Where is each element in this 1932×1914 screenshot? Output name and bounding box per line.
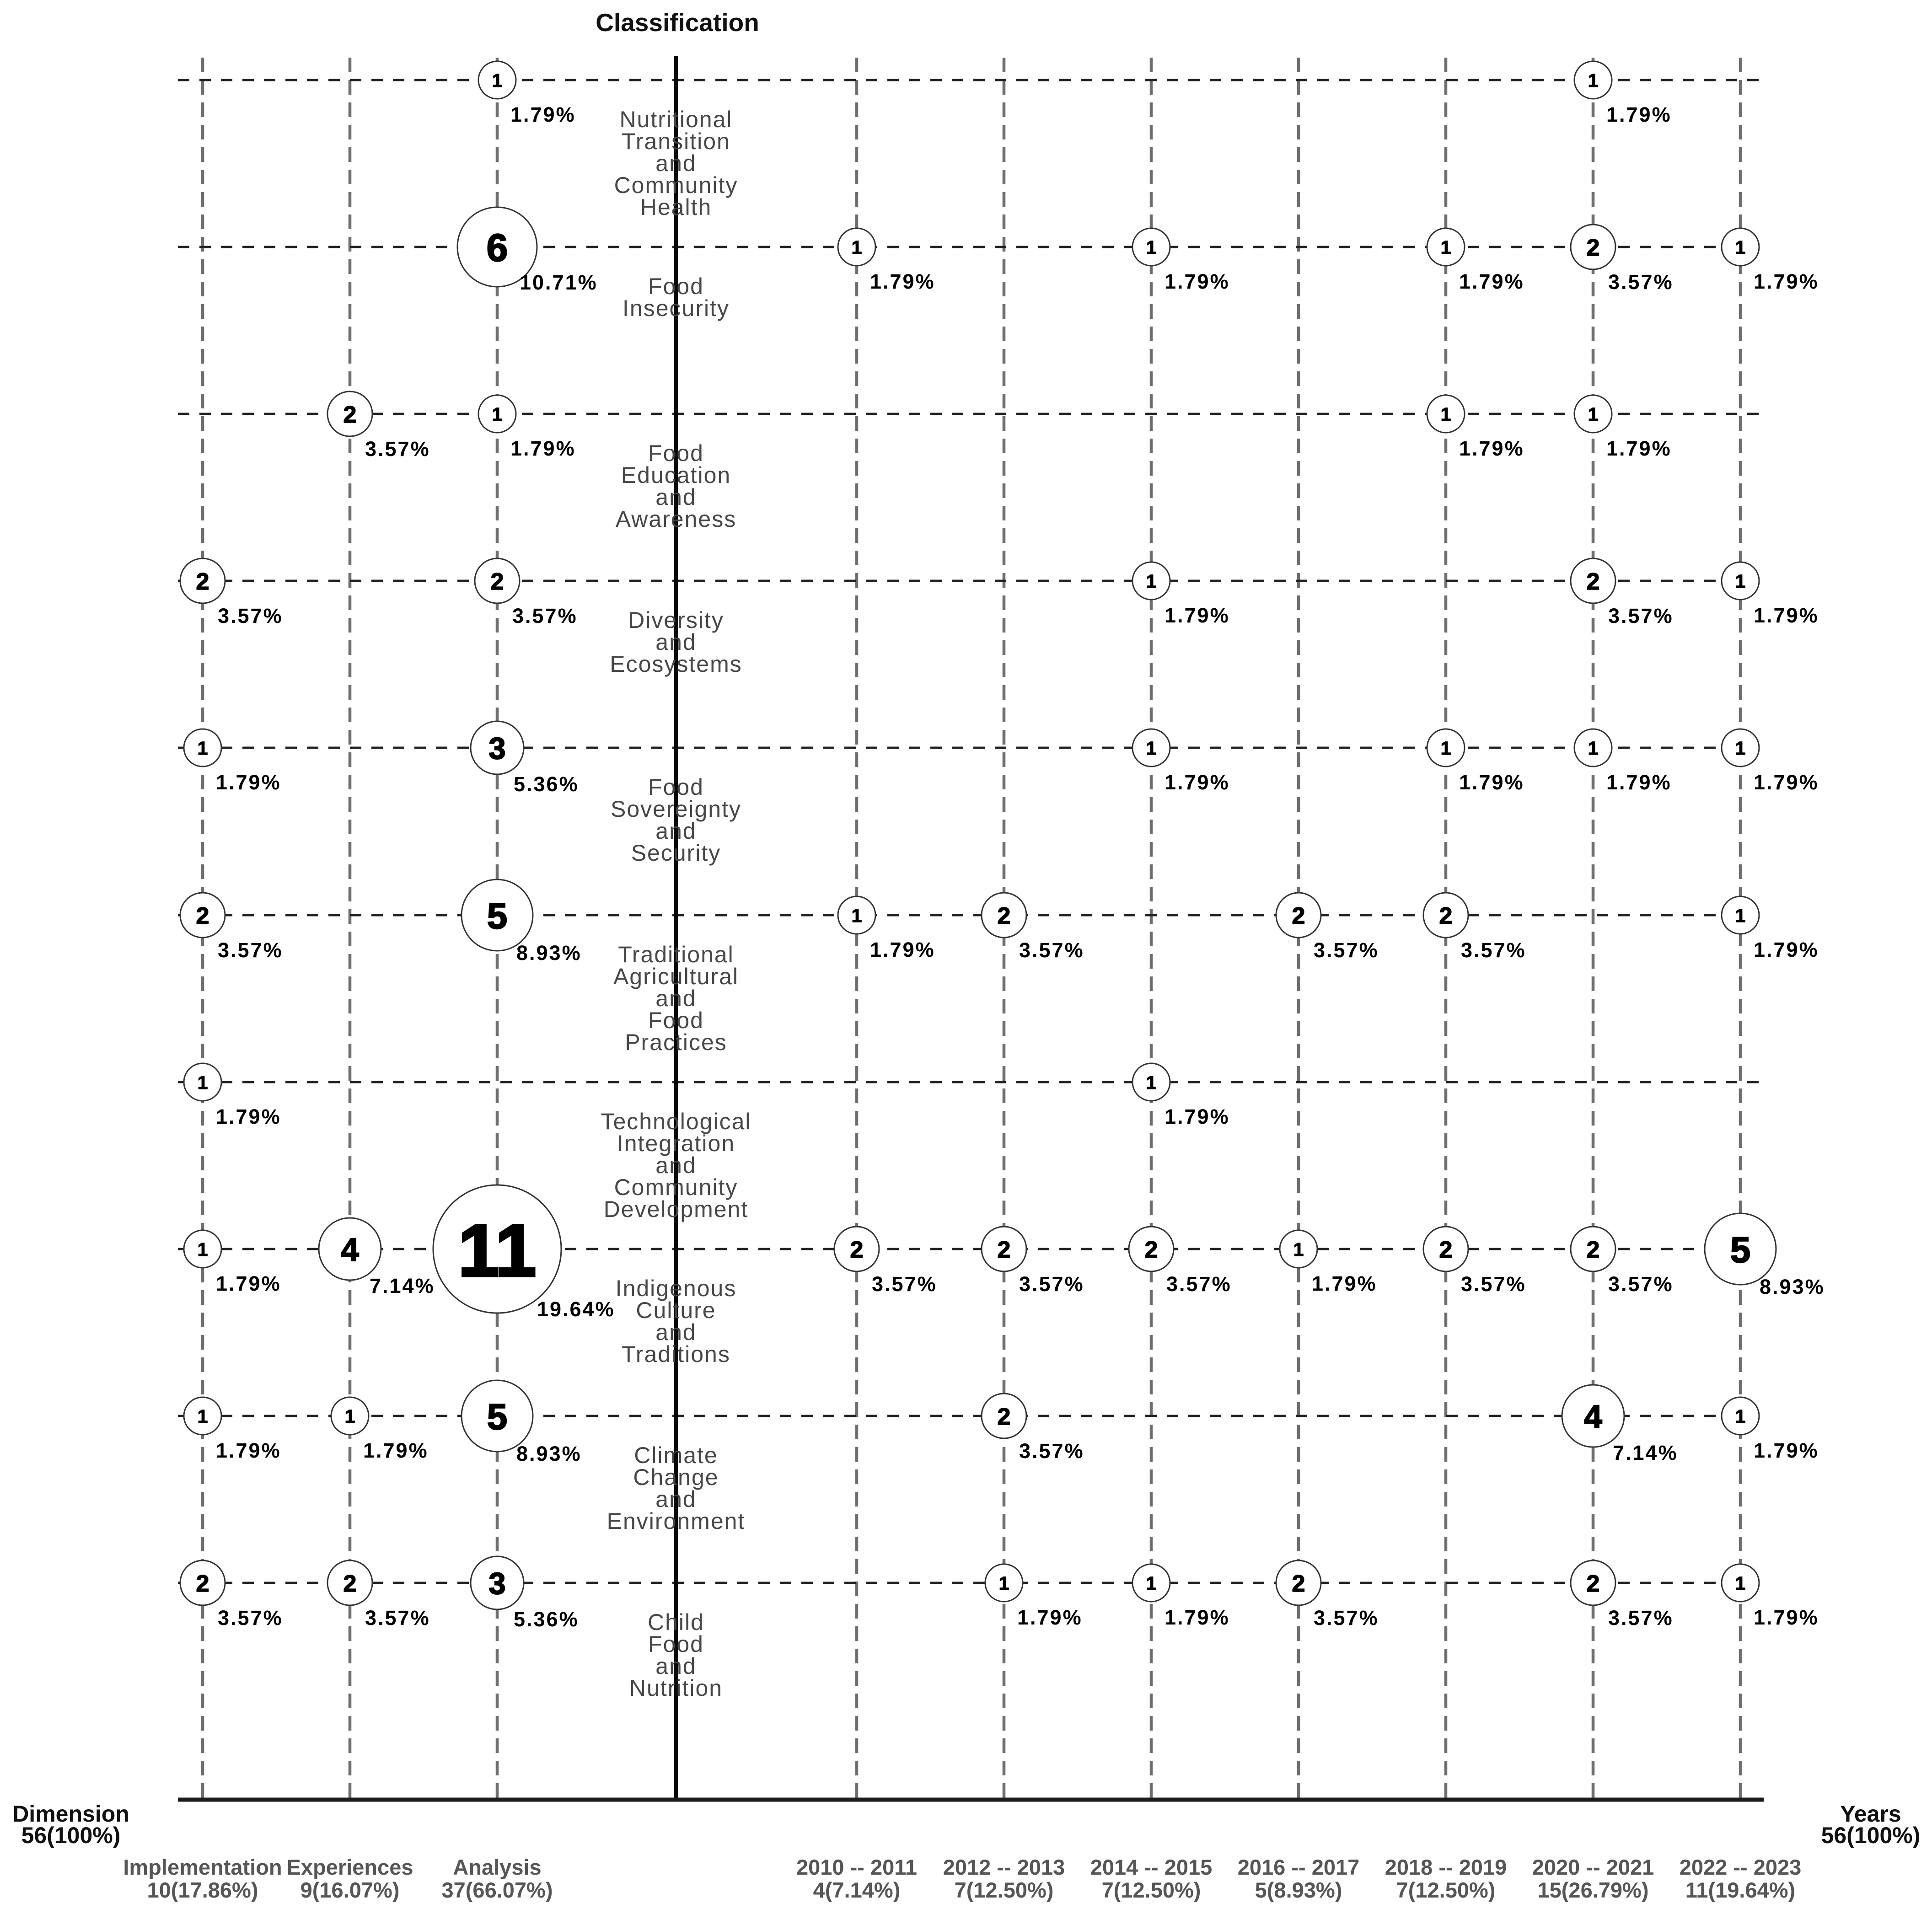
svg-text:5: 5 bbox=[487, 895, 508, 936]
svg-text:1: 1 bbox=[1735, 1573, 1746, 1594]
svg-text:ChildFoodandNutrition: ChildFoodandNutrition bbox=[629, 1609, 723, 1701]
svg-text:7.14%: 7.14% bbox=[370, 1274, 435, 1297]
svg-text:3.57%: 3.57% bbox=[1019, 1272, 1084, 1296]
svg-text:1.79%: 1.79% bbox=[1312, 1272, 1377, 1295]
svg-text:Analysis37(66.07%): Analysis37(66.07%) bbox=[442, 1855, 553, 1902]
svg-text:1: 1 bbox=[1441, 404, 1451, 425]
svg-text:2: 2 bbox=[1439, 903, 1453, 929]
svg-text:TraditionalAgriculturalandFood: TraditionalAgriculturalandFoodPractices bbox=[613, 942, 739, 1055]
svg-text:10.71%: 10.71% bbox=[520, 271, 598, 294]
svg-text:11: 11 bbox=[458, 1209, 536, 1292]
svg-text:1: 1 bbox=[345, 1406, 355, 1427]
svg-text:3.57%: 3.57% bbox=[872, 1272, 937, 1296]
svg-text:3.57%: 3.57% bbox=[1314, 1606, 1379, 1630]
svg-text:1: 1 bbox=[198, 1239, 208, 1260]
svg-text:1: 1 bbox=[1146, 1573, 1157, 1594]
svg-text:1: 1 bbox=[198, 1072, 208, 1093]
svg-text:1.79%: 1.79% bbox=[1754, 604, 1819, 627]
svg-text:Implementation10(17.86%): Implementation10(17.86%) bbox=[123, 1855, 282, 1902]
svg-text:1.79%: 1.79% bbox=[363, 1439, 429, 1462]
svg-text:1.79%: 1.79% bbox=[1459, 270, 1524, 293]
svg-text:2: 2 bbox=[850, 1237, 864, 1263]
svg-text:2: 2 bbox=[1292, 1571, 1305, 1597]
svg-text:Experiences9(16.07%): Experiences9(16.07%) bbox=[287, 1855, 413, 1902]
svg-text:5.36%: 5.36% bbox=[514, 772, 579, 796]
svg-text:1.79%: 1.79% bbox=[216, 771, 281, 794]
svg-text:1.79%: 1.79% bbox=[1165, 270, 1230, 293]
svg-text:ClimateChangeandEnvironment: ClimateChangeandEnvironment bbox=[607, 1442, 746, 1534]
svg-text:2: 2 bbox=[998, 1404, 1011, 1430]
svg-text:2: 2 bbox=[1292, 903, 1305, 929]
svg-text:2: 2 bbox=[491, 568, 504, 595]
svg-text:1.79%: 1.79% bbox=[1165, 604, 1230, 627]
svg-text:2: 2 bbox=[1587, 1237, 1600, 1263]
svg-text:3.57%: 3.57% bbox=[1019, 1439, 1084, 1463]
svg-text:7.14%: 7.14% bbox=[1613, 1441, 1678, 1464]
svg-text:2020 -- 202115(26.79%): 2020 -- 202115(26.79%) bbox=[1532, 1855, 1654, 1902]
svg-text:3.57%: 3.57% bbox=[1019, 938, 1084, 962]
svg-text:1.79%: 1.79% bbox=[1754, 270, 1819, 293]
svg-text:1: 1 bbox=[1441, 738, 1451, 759]
svg-text:1.79%: 1.79% bbox=[1459, 771, 1524, 794]
svg-text:1: 1 bbox=[1146, 1072, 1157, 1093]
svg-text:3.57%: 3.57% bbox=[1608, 270, 1674, 294]
svg-text:DiversityandEcosystems: DiversityandEcosystems bbox=[610, 607, 742, 677]
svg-text:3.57%: 3.57% bbox=[1608, 1606, 1674, 1630]
svg-text:4: 4 bbox=[1584, 1399, 1602, 1435]
svg-text:1: 1 bbox=[999, 1573, 1009, 1594]
svg-text:1.79%: 1.79% bbox=[1165, 771, 1230, 794]
svg-text:8.93%: 8.93% bbox=[1760, 1275, 1825, 1298]
svg-text:3.57%: 3.57% bbox=[1461, 1272, 1526, 1296]
svg-text:2: 2 bbox=[1587, 1571, 1600, 1597]
svg-text:3.57%: 3.57% bbox=[1166, 1272, 1232, 1296]
svg-text:2: 2 bbox=[343, 402, 357, 428]
svg-text:2: 2 bbox=[1439, 1237, 1453, 1263]
svg-text:3: 3 bbox=[488, 1566, 505, 1601]
svg-text:1.79%: 1.79% bbox=[216, 1105, 281, 1128]
svg-text:2: 2 bbox=[196, 1571, 209, 1597]
svg-text:3.57%: 3.57% bbox=[365, 437, 430, 461]
svg-text:2: 2 bbox=[1587, 568, 1600, 595]
svg-text:8.93%: 8.93% bbox=[516, 1442, 582, 1465]
svg-text:2: 2 bbox=[1145, 1237, 1158, 1263]
svg-text:1: 1 bbox=[1735, 237, 1746, 258]
svg-text:1.79%: 1.79% bbox=[1017, 1606, 1083, 1629]
svg-text:2012 -- 20137(12.50%): 2012 -- 20137(12.50%) bbox=[943, 1855, 1065, 1902]
svg-text:1: 1 bbox=[492, 70, 503, 91]
svg-text:1.79%: 1.79% bbox=[1165, 1606, 1230, 1629]
svg-text:4: 4 bbox=[341, 1232, 359, 1268]
svg-text:3.57%: 3.57% bbox=[218, 938, 283, 962]
svg-text:1.79%: 1.79% bbox=[1754, 938, 1819, 961]
svg-text:1: 1 bbox=[1735, 905, 1746, 926]
svg-text:1: 1 bbox=[852, 905, 862, 926]
svg-text:2: 2 bbox=[196, 568, 209, 595]
svg-text:1: 1 bbox=[1735, 571, 1746, 592]
svg-text:FoodInsecurity: FoodInsecurity bbox=[623, 273, 730, 321]
svg-text:1: 1 bbox=[198, 1406, 208, 1427]
svg-text:5: 5 bbox=[487, 1396, 508, 1437]
svg-text:1.79%: 1.79% bbox=[216, 1272, 281, 1295]
svg-text:1: 1 bbox=[1588, 404, 1599, 425]
svg-text:1: 1 bbox=[198, 738, 208, 759]
svg-text:1.79%: 1.79% bbox=[1165, 1105, 1230, 1128]
svg-text:1.79%: 1.79% bbox=[1754, 1439, 1819, 1462]
svg-text:1.79%: 1.79% bbox=[870, 938, 935, 961]
svg-text:2018 -- 20197(12.50%): 2018 -- 20197(12.50%) bbox=[1385, 1855, 1507, 1902]
svg-text:3.57%: 3.57% bbox=[218, 604, 283, 627]
svg-text:1: 1 bbox=[1146, 237, 1157, 258]
svg-text:2: 2 bbox=[998, 1237, 1011, 1263]
svg-text:5.36%: 5.36% bbox=[514, 1608, 579, 1631]
svg-text:2010 -- 20114(7.14%): 2010 -- 20114(7.14%) bbox=[796, 1855, 917, 1902]
svg-text:Dimension56(100%): Dimension56(100%) bbox=[12, 1801, 129, 1848]
svg-text:1.79%: 1.79% bbox=[216, 1439, 281, 1462]
svg-text:IndigenousCultureandTraditions: IndigenousCultureandTraditions bbox=[616, 1276, 737, 1367]
svg-text:1: 1 bbox=[1588, 738, 1599, 759]
svg-text:TechnologicalIntegrationandCom: TechnologicalIntegrationandCommunityDeve… bbox=[601, 1109, 751, 1222]
svg-text:FoodEducationandAwareness: FoodEducationandAwareness bbox=[616, 440, 736, 532]
svg-text:2: 2 bbox=[1587, 235, 1600, 261]
svg-text:3.57%: 3.57% bbox=[218, 1606, 283, 1630]
svg-text:Classification: Classification bbox=[596, 8, 759, 37]
svg-text:2014 -- 20157(12.50%): 2014 -- 20157(12.50%) bbox=[1090, 1855, 1213, 1902]
svg-text:8.93%: 8.93% bbox=[516, 941, 582, 965]
svg-text:3.57%: 3.57% bbox=[1608, 1272, 1674, 1296]
svg-text:2: 2 bbox=[343, 1571, 357, 1597]
svg-text:2: 2 bbox=[998, 903, 1011, 929]
svg-text:1.79%: 1.79% bbox=[1459, 437, 1524, 460]
svg-text:3.57%: 3.57% bbox=[1314, 938, 1379, 962]
svg-text:3.57%: 3.57% bbox=[365, 1606, 430, 1630]
svg-text:1.79%: 1.79% bbox=[870, 270, 935, 293]
svg-text:1: 1 bbox=[1588, 70, 1599, 91]
svg-text:1: 1 bbox=[492, 404, 503, 425]
svg-text:1.79%: 1.79% bbox=[1754, 771, 1819, 794]
svg-text:1: 1 bbox=[1146, 738, 1157, 759]
svg-text:1.79%: 1.79% bbox=[1754, 1606, 1819, 1629]
svg-text:1.79%: 1.79% bbox=[1606, 103, 1672, 126]
svg-text:3: 3 bbox=[488, 731, 505, 766]
svg-text:5: 5 bbox=[1730, 1229, 1751, 1270]
svg-text:1: 1 bbox=[1146, 571, 1157, 592]
svg-text:1: 1 bbox=[1293, 1239, 1304, 1260]
svg-text:1: 1 bbox=[1735, 1406, 1746, 1427]
svg-text:2: 2 bbox=[196, 903, 209, 929]
svg-text:1.79%: 1.79% bbox=[1606, 771, 1672, 794]
svg-text:1.79%: 1.79% bbox=[510, 103, 576, 126]
svg-text:3.57%: 3.57% bbox=[1608, 604, 1674, 627]
svg-text:Years56(100%): Years56(100%) bbox=[1821, 1801, 1921, 1848]
svg-text:2016 -- 20175(8.93%): 2016 -- 20175(8.93%) bbox=[1238, 1855, 1360, 1902]
svg-text:1: 1 bbox=[1441, 237, 1451, 258]
svg-text:3.57%: 3.57% bbox=[512, 604, 578, 627]
svg-text:1.79%: 1.79% bbox=[510, 437, 576, 460]
svg-text:1: 1 bbox=[852, 237, 862, 258]
svg-text:6: 6 bbox=[487, 226, 508, 269]
svg-text:2022 -- 202311(19.64%): 2022 -- 202311(19.64%) bbox=[1680, 1855, 1802, 1902]
svg-text:1.79%: 1.79% bbox=[1606, 437, 1672, 460]
svg-text:19.64%: 19.64% bbox=[537, 1297, 615, 1321]
svg-text:NutritionalTransitionandCommun: NutritionalTransitionandCommunityHealth bbox=[614, 107, 738, 220]
svg-text:1: 1 bbox=[1735, 738, 1746, 759]
svg-text:3.57%: 3.57% bbox=[1461, 938, 1526, 962]
svg-text:FoodSovereigntyandSecurity: FoodSovereigntyandSecurity bbox=[611, 774, 741, 866]
